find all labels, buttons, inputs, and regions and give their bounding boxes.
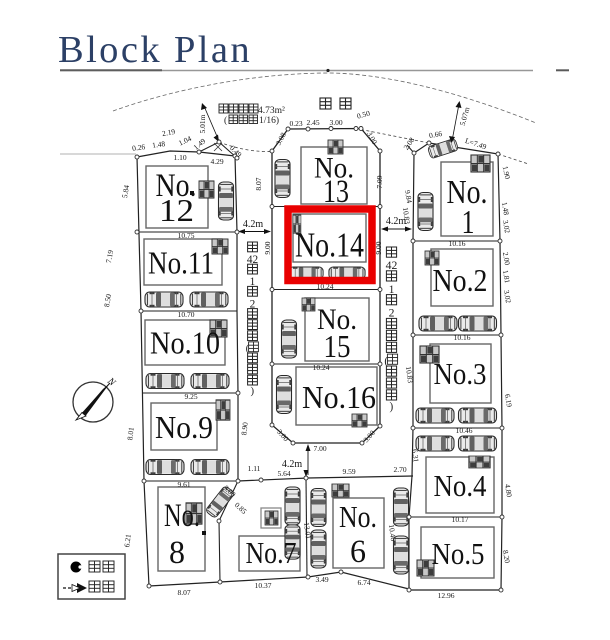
svg-text:8.50: 8.50 — [102, 293, 113, 308]
svg-text:8.07: 8.07 — [254, 177, 263, 190]
svg-text:No.7: No.7 — [246, 535, 297, 570]
svg-text:1.11: 1.11 — [248, 464, 261, 473]
svg-text:9.00: 9.00 — [263, 241, 272, 254]
svg-text:5.01m: 5.01m — [198, 114, 207, 133]
svg-text:7.09: 7.09 — [375, 175, 384, 188]
svg-text:No.11: No.11 — [148, 246, 214, 281]
svg-text:1.10: 1.10 — [173, 153, 186, 162]
svg-text:12.96: 12.96 — [438, 591, 455, 600]
svg-text:No.4: No.4 — [434, 468, 487, 503]
svg-text:2.45: 2.45 — [306, 118, 319, 127]
svg-text:2.19: 2.19 — [161, 127, 176, 138]
svg-text:5.64: 5.64 — [277, 469, 290, 478]
svg-text:No.: No. — [164, 498, 200, 534]
svg-text:10.16: 10.16 — [449, 239, 466, 248]
svg-text:12: 12 — [159, 192, 194, 228]
svg-text:10.17: 10.17 — [452, 515, 469, 524]
svg-text:7.00: 7.00 — [313, 444, 326, 453]
svg-text:10.75: 10.75 — [178, 231, 195, 240]
svg-text:No.2: No.2 — [433, 263, 488, 298]
svg-text:No.14: No.14 — [295, 226, 364, 265]
svg-text:2: 2 — [389, 307, 395, 320]
svg-text:No.9: No.9 — [155, 409, 213, 445]
svg-text:9.25: 9.25 — [184, 392, 197, 401]
svg-text:3.02: 3.02 — [501, 219, 512, 234]
svg-text:8: 8 — [169, 535, 185, 571]
svg-text:8.01: 8.01 — [125, 426, 136, 440]
svg-text:1.48: 1.48 — [152, 139, 166, 150]
svg-text:(: ( — [224, 115, 227, 126]
svg-text:5.07m: 5.07m — [458, 106, 472, 127]
svg-text:No.5: No.5 — [432, 536, 485, 571]
svg-text:42: 42 — [386, 259, 398, 272]
svg-text:10.16: 10.16 — [454, 333, 471, 342]
svg-text:7.19: 7.19 — [104, 249, 115, 264]
svg-text:): ) — [251, 385, 255, 397]
svg-text:4.29: 4.29 — [210, 157, 223, 166]
svg-text:1: 1 — [462, 204, 475, 241]
svg-text:0.66: 0.66 — [428, 129, 443, 140]
svg-text:2.00: 2.00 — [501, 251, 512, 266]
svg-text:No.3: No.3 — [434, 356, 487, 391]
svg-text:9.84: 9.84 — [403, 189, 414, 204]
svg-text:No.10: No.10 — [150, 325, 220, 361]
svg-text:4.2m: 4.2m — [243, 219, 264, 230]
svg-text:3.00: 3.00 — [329, 118, 342, 127]
svg-text:10.70: 10.70 — [178, 310, 195, 319]
svg-text:5.84: 5.84 — [120, 184, 131, 199]
svg-text:10.37: 10.37 — [255, 581, 272, 590]
svg-text:0.23: 0.23 — [289, 119, 302, 128]
svg-text:9.59: 9.59 — [342, 467, 355, 476]
svg-text:No.: No. — [339, 499, 377, 534]
svg-text:3.49: 3.49 — [315, 575, 328, 584]
svg-text:1.90: 1.90 — [501, 165, 513, 180]
svg-text:9.61: 9.61 — [177, 480, 190, 489]
svg-text:6.74: 6.74 — [357, 578, 370, 587]
svg-text:6: 6 — [350, 534, 366, 570]
svg-text:1/16): 1/16) — [259, 115, 279, 126]
svg-text:1.48: 1.48 — [500, 201, 511, 216]
svg-text:10.46: 10.46 — [387, 524, 398, 542]
svg-text:15: 15 — [324, 328, 351, 364]
svg-text:Block Plan: Block Plan — [58, 29, 252, 71]
svg-text:0.85: 0.85 — [233, 500, 249, 516]
svg-text:2.70: 2.70 — [393, 465, 406, 474]
svg-text:1.04: 1.04 — [177, 134, 193, 148]
svg-text:3.02: 3.02 — [502, 289, 513, 304]
svg-text:10.46: 10.46 — [456, 426, 473, 435]
svg-text:1.81: 1.81 — [501, 269, 512, 284]
svg-text:6.21: 6.21 — [122, 533, 133, 547]
svg-text:8.90: 8.90 — [239, 421, 250, 435]
svg-text:2.08: 2.08 — [402, 135, 417, 151]
svg-text:10.83: 10.83 — [404, 366, 415, 384]
svg-text:No.16: No.16 — [302, 379, 376, 415]
svg-text:6.19: 6.19 — [503, 393, 514, 408]
svg-text:6.31: 6.31 — [410, 449, 421, 463]
svg-text:13.01: 13.01 — [302, 522, 313, 540]
svg-text:8.07: 8.07 — [177, 588, 190, 597]
svg-text:13: 13 — [323, 174, 349, 210]
svg-text:0.50: 0.50 — [356, 108, 371, 120]
svg-text:1: 1 — [389, 283, 395, 296]
svg-text:): ) — [390, 401, 394, 413]
svg-text:0.26: 0.26 — [132, 142, 146, 153]
svg-text:10.24: 10.24 — [313, 363, 330, 372]
svg-text:8.20: 8.20 — [501, 549, 512, 564]
svg-text:4.73m²: 4.73m² — [258, 106, 285, 116]
svg-text:4.80: 4.80 — [503, 483, 514, 498]
